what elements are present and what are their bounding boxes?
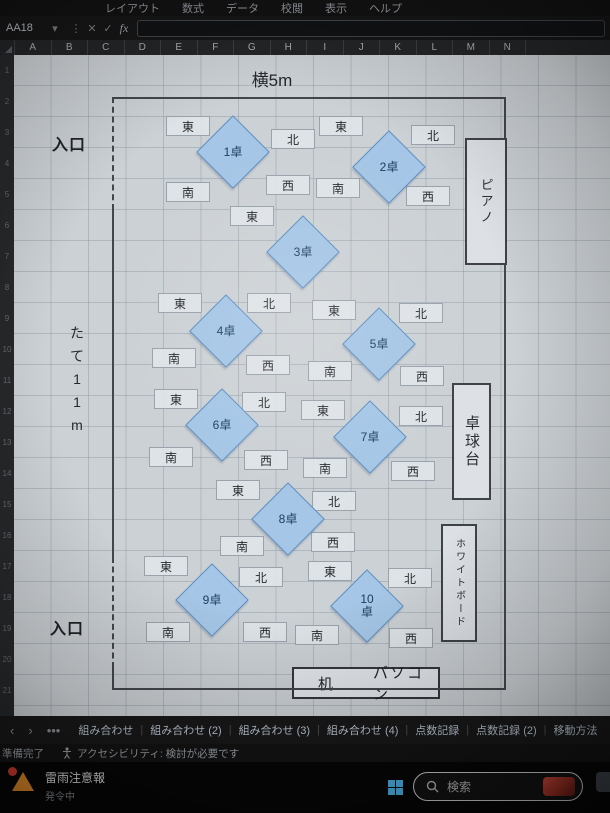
column-header-J[interactable]: J: [344, 40, 381, 55]
direction-label-west[interactable]: 西: [266, 175, 310, 195]
column-header-L[interactable]: L: [417, 40, 454, 55]
name-box-dropdown-icon[interactable]: ▾: [47, 22, 63, 35]
table-1[interactable]: 1卓: [196, 115, 270, 189]
sheet-tab-1[interactable]: 組み合わせ: [74, 722, 137, 738]
formula-bar: AA18 ▾ ⋮ ✕ ✓ fx: [0, 16, 610, 40]
table-label: 5卓: [370, 338, 389, 351]
room-wall-bottom: [112, 688, 506, 690]
name-box-value: AA18: [6, 22, 33, 34]
tab-separator: |: [140, 724, 143, 736]
weather-alert-status: 発令中: [45, 788, 105, 803]
next-sheet-icon[interactable]: ›: [28, 723, 32, 738]
room-width-label: 横5m: [240, 66, 304, 91]
table-3[interactable]: 3卓: [266, 215, 340, 289]
weather-alert-icon: [10, 769, 36, 793]
cancel-icon[interactable]: ✕: [84, 22, 100, 35]
column-header-N[interactable]: N: [490, 40, 527, 55]
entrance-opening-dashed: [112, 557, 114, 668]
ribbon-tab-数式[interactable]: 数式: [182, 2, 204, 16]
column-header-H[interactable]: H: [271, 40, 308, 55]
taskbar-app-icon[interactable]: [596, 772, 610, 792]
row-header-3[interactable]: 3: [0, 117, 14, 148]
row-header-8[interactable]: 8: [0, 272, 14, 303]
name-box[interactable]: AA18 ▾: [0, 22, 68, 35]
column-header-K[interactable]: K: [380, 40, 417, 55]
row-header-2[interactable]: 2: [0, 86, 14, 117]
row-header-12[interactable]: 12: [0, 396, 14, 427]
more-options-icon[interactable]: ⋮: [68, 22, 84, 35]
row-header-14[interactable]: 14: [0, 458, 14, 489]
pc-label: パソコン: [373, 662, 438, 704]
column-header-D[interactable]: D: [125, 40, 162, 55]
sheet-area[interactable]: 123456789101112131415161718192021 横5m たて…: [0, 55, 610, 716]
room-wall-left: [112, 668, 114, 690]
row-header-11[interactable]: 11: [0, 365, 14, 396]
row-header-7[interactable]: 7: [0, 241, 14, 272]
row-header-4[interactable]: 4: [0, 148, 14, 179]
row-header-19[interactable]: 19: [0, 613, 14, 644]
accessibility-status[interactable]: アクセシビリティ: 検討が必要です: [77, 746, 239, 761]
column-header-C[interactable]: C: [88, 40, 125, 55]
row-header-10[interactable]: 10: [0, 334, 14, 365]
taskbar-search[interactable]: 検索: [413, 772, 583, 801]
entrance-opening-dashed: [112, 97, 114, 210]
sheet-tab-2[interactable]: 組み合わせ (2): [146, 722, 226, 738]
row-header-16[interactable]: 16: [0, 520, 14, 551]
room-height-label: たて11m: [64, 322, 90, 437]
alert-badge: [8, 767, 17, 776]
search-icon: [426, 780, 439, 793]
row-headers[interactable]: 123456789101112131415161718192021: [0, 55, 14, 716]
row-header-13[interactable]: 13: [0, 427, 14, 458]
desk-label: 机: [318, 673, 333, 694]
sheet-tab-6[interactable]: 点数記録 (2): [472, 722, 541, 738]
ribbon-menu-bar: レイアウト数式データ校閲表示ヘルプ: [0, 0, 610, 16]
entrance-top-label: 入口: [52, 131, 86, 155]
table-7[interactable]: 7卓: [333, 400, 407, 474]
ribbon-tab-校閲[interactable]: 校閲: [281, 2, 303, 16]
ribbon-tab-ヘルプ[interactable]: ヘルプ: [369, 2, 402, 16]
status-bar: 準備完了 アクセシビリティ: 検討が必要です: [0, 744, 610, 762]
desk-pc-box[interactable]: 机 パソコン: [292, 667, 440, 699]
tab-separator: |: [405, 724, 408, 736]
furniture-table-tennis[interactable]: 卓球台: [452, 383, 491, 500]
ribbon-tab-レイアウト[interactable]: レイアウト: [105, 2, 160, 16]
table-label: 4卓: [217, 325, 236, 338]
room-wall-top: [112, 97, 506, 99]
table-label: 7卓: [361, 431, 380, 444]
enter-icon[interactable]: ✓: [100, 22, 116, 35]
column-header-M[interactable]: M: [453, 40, 490, 55]
room-height-char: て: [64, 345, 90, 368]
ribbon-tab-表示[interactable]: 表示: [325, 2, 347, 16]
gridlines: [14, 55, 610, 716]
direction-label-north[interactable]: 北: [271, 129, 315, 149]
column-header-I[interactable]: I: [307, 40, 344, 55]
tab-separator: |: [544, 724, 547, 736]
search-placeholder: 検索: [447, 778, 471, 795]
tab-separator: |: [317, 724, 320, 736]
all-sheets-icon[interactable]: •••: [47, 723, 61, 738]
taskbar: 雷雨注意報 発令中 検索: [0, 762, 610, 813]
room-height-char: m: [64, 414, 90, 437]
table-label: 10 卓: [360, 593, 373, 618]
table-label: 2卓: [380, 161, 399, 174]
sheet-tab-3[interactable]: 組み合わせ (3): [235, 722, 315, 738]
table-label: 6卓: [213, 419, 232, 432]
column-header-E[interactable]: E: [161, 40, 198, 55]
column-header-A[interactable]: A: [15, 40, 52, 55]
table-label: 9卓: [203, 594, 222, 607]
sheet-tab-5[interactable]: 点数記録: [411, 722, 463, 738]
room-wall-left: [112, 210, 114, 557]
tab-separator: |: [229, 724, 232, 736]
weather-widget[interactable]: 雷雨注意報 発令中: [10, 769, 105, 803]
row-header-1[interactable]: 1: [0, 55, 14, 86]
furniture-whiteboard[interactable]: ホワイトボード: [441, 524, 477, 642]
sheet-tab-7[interactable]: 移動方法: [550, 722, 602, 738]
table-label: 1卓: [224, 146, 243, 159]
excel-window: レイアウト数式データ校閲表示ヘルプ AA18 ▾ ⋮ ✕ ✓ fx ABCDEF…: [0, 0, 610, 813]
table-label: 3卓: [294, 246, 313, 259]
entrance-bottom-label: 入口: [50, 615, 84, 639]
direction-label-west[interactable]: 西: [243, 622, 287, 642]
row-header-15[interactable]: 15: [0, 489, 14, 520]
table-6[interactable]: 6卓: [185, 388, 259, 462]
accessibility-icon: [62, 747, 72, 759]
row-header-18[interactable]: 18: [0, 582, 14, 613]
select-all-corner[interactable]: [0, 40, 15, 55]
weather-alert-title: 雷雨注意報: [45, 769, 105, 786]
table-5[interactable]: 5卓: [342, 307, 416, 381]
row-header-21[interactable]: 21: [0, 675, 14, 706]
tab-separator: |: [466, 724, 469, 736]
ribbon-tab-データ[interactable]: データ: [226, 2, 259, 16]
column-header-G[interactable]: G: [234, 40, 271, 55]
column-header-F[interactable]: F: [198, 40, 235, 55]
column-header-B[interactable]: B: [52, 40, 89, 55]
table-2[interactable]: 2卓: [352, 130, 426, 204]
table-9[interactable]: 9卓: [175, 563, 249, 637]
search-highlight-image[interactable]: [543, 777, 575, 796]
row-header-17[interactable]: 17: [0, 551, 14, 582]
room-height-char: た: [64, 322, 90, 345]
table-4[interactable]: 4卓: [189, 294, 263, 368]
row-header-5[interactable]: 5: [0, 179, 14, 210]
row-header-20[interactable]: 20: [0, 644, 14, 675]
table-10[interactable]: 10 卓: [330, 569, 404, 643]
room-height-char: 1: [64, 391, 90, 414]
row-header-9[interactable]: 9: [0, 303, 14, 334]
furniture-piano[interactable]: ピアノ: [465, 138, 507, 265]
formula-input[interactable]: [137, 20, 605, 37]
table-label: 8卓: [279, 513, 298, 526]
column-headers: ABCDEFGHIJKLMN: [0, 40, 610, 55]
row-header-6[interactable]: 6: [0, 210, 14, 241]
table-8[interactable]: 8卓: [251, 482, 325, 556]
sheet-tab-4[interactable]: 組み合わせ (4): [323, 722, 403, 738]
prev-sheet-icon[interactable]: ‹: [10, 723, 14, 738]
room-height-char: 1: [64, 368, 90, 391]
windows-start-button[interactable]: [388, 780, 403, 795]
sheet-tab-bar: ‹ › ••• 組み合わせ|組み合わせ (2)|組み合わせ (3)|組み合わせ …: [0, 716, 610, 744]
ready-status: 準備完了: [2, 746, 44, 761]
insert-function-icon[interactable]: fx: [116, 21, 132, 36]
